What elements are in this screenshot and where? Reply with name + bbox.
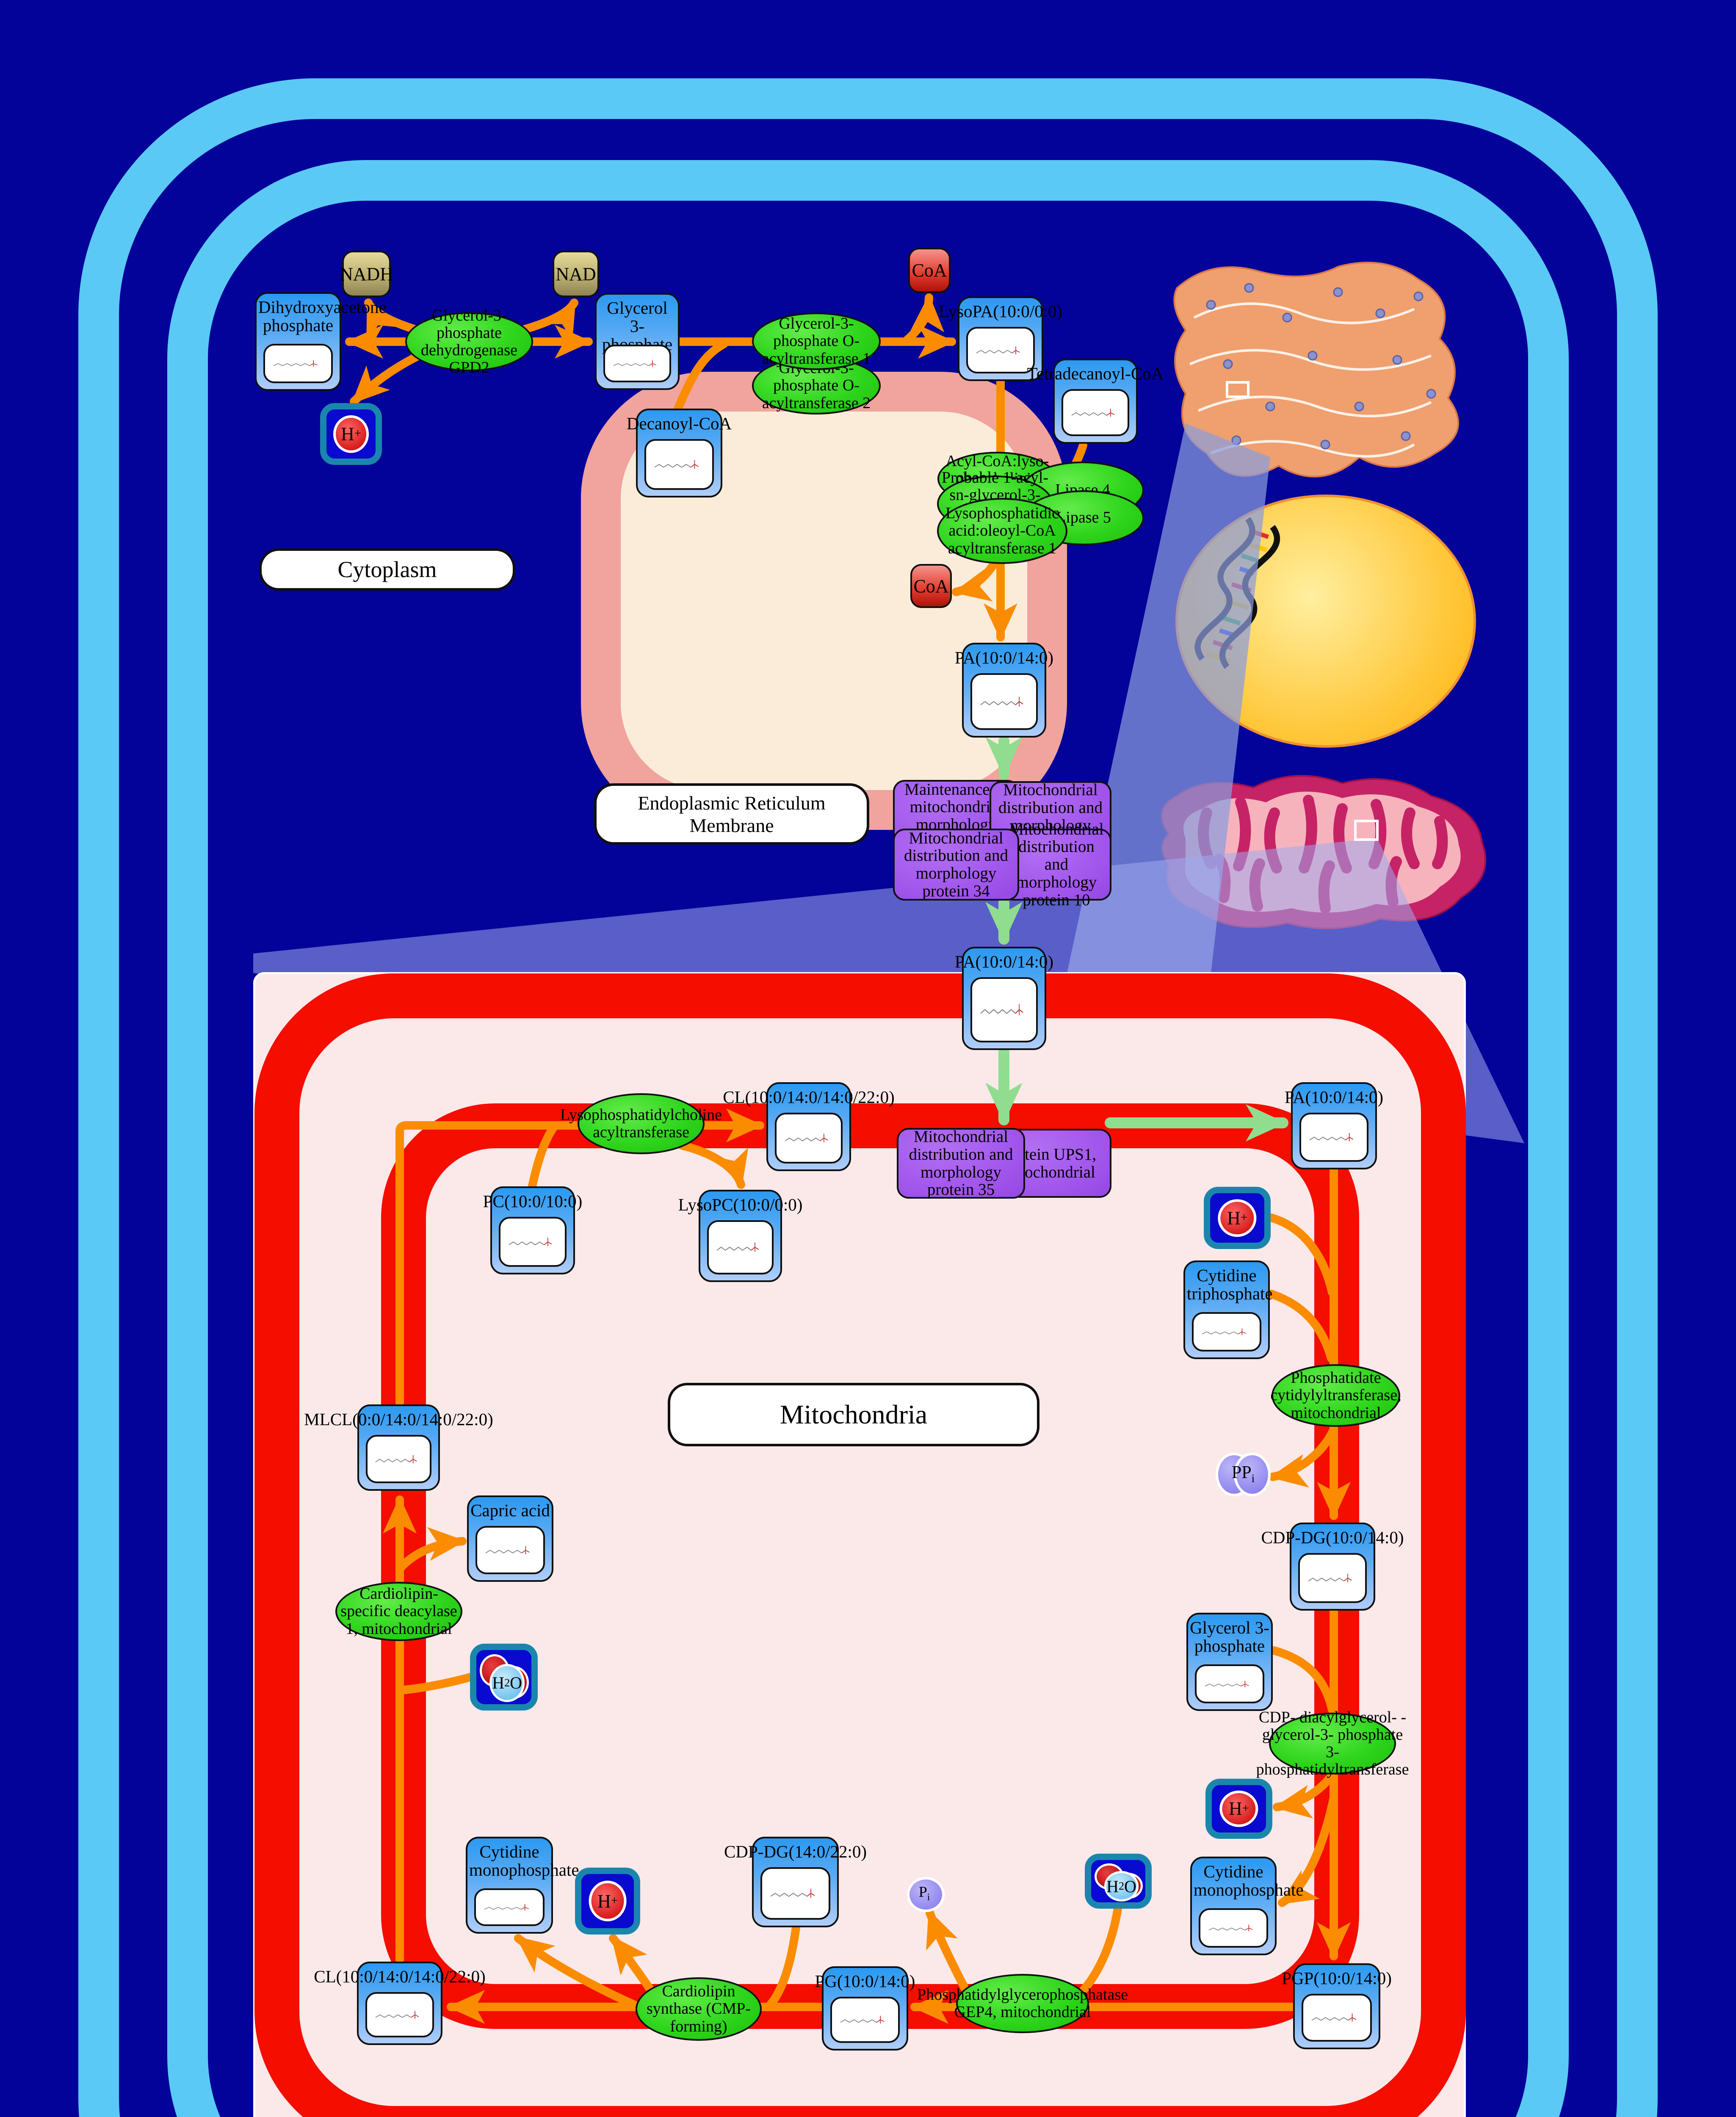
structure-thumbnail [474,1888,545,1926]
compartment-label-cytoplasm: Cytoplasm [259,548,515,591]
metabolite-label: PGP(10:0/14:0) [1282,1969,1392,1987]
cofactor-h_bot[interactable]: H+ [575,1868,640,1935]
structure-thumbnail [499,1217,567,1267]
metabolite-tetradecanoyl[interactable]: Tetradecanoyl-CoA [1053,359,1138,444]
cofactor-h_im2[interactable]: H+ [1205,1779,1272,1839]
enzyme-label: Cardiolipin- specific deacylase 1, mitoc… [337,1585,461,1637]
proton-icon: H+ [589,1881,627,1921]
metabolite-cl_bottom[interactable]: CL(10:0/14:0/14:0/22:0) [357,1962,442,2045]
metabolite-label: Glycerol 3-phosphate [1190,1619,1269,1655]
enzyme-label: CDP- diacylglycerol- -glycerol-3- phosph… [1256,1709,1409,1778]
water-icon: H2O [1104,1871,1139,1901]
metabolite-label: Capric acid [470,1501,550,1520]
metabolite-cdpdg2[interactable]: CDP-DG(14:0/22:0) [752,1837,839,1927]
structure-thumbnail [644,439,714,490]
transporter-mdm34[interactable]: Mitochondrial distribution and morpholog… [893,829,1019,901]
metabolite-g3p_top[interactable]: Glycerol 3-phosphate [595,293,680,390]
structure-thumbnail [365,1992,434,2037]
metabolite-label: Cytidine triphosphate [1187,1266,1266,1303]
metabolite-label: CL(10:0/14:0/14:0/22:0) [314,1968,485,1986]
transporter-label: Mitochondrial distribution and morpholog… [899,829,1013,900]
metabolite-label: MLCL(0:0/14:0/14:0/22:0) [304,1410,493,1429]
metabolite-pgp[interactable]: PGP(10:0/14:0) [1293,1963,1380,2049]
structure-thumbnail [775,1113,843,1164]
cofactor-coa_top[interactable]: CoA [908,248,951,293]
metabolite-label: CDP-DG(14:0/22:0) [724,1843,867,1861]
enzyme-gep4[interactable]: Phosphatidylglycerophosphatase GEP4, mit… [956,1974,1089,2033]
cofactor-pi[interactable]: Pi [907,1877,942,1909]
metabolite-g3p_right[interactable]: Glycerol 3-phosphate [1186,1613,1273,1711]
metabolite-pg[interactable]: PG(10:0/14:0) [822,1966,908,2051]
metabolite-pc[interactable]: PC(10:0/10:0) [490,1186,575,1274]
metabolite-label: PC(10:0/10:0) [483,1192,583,1211]
enzyme-pgs1[interactable]: CDP- diacylglycerol- -glycerol-3- phosph… [1269,1713,1396,1774]
cofactor-nad[interactable]: NAD [553,251,599,297]
structure-thumbnail [475,1526,545,1574]
enzyme-label: Cardiolipin synthase (CMP-forming) [637,1983,760,2035]
transporter-label: Mitochondrial distribution and morpholog… [1007,821,1106,909]
enzyme-label: Lysophosphatidylcholine acyltransferase [560,1106,722,1141]
cofactor-h_top[interactable]: H+ [320,403,382,465]
enzyme-lpcat[interactable]: Lysophosphatidylcholine acyltransferase [578,1093,705,1154]
structure-thumbnail [966,327,1035,373]
nodes-layer: Dihydroxyacetone phosphateGlycerol 3-pho… [0,0,1736,2117]
metabolite-label: Tetradecanoyl-CoA [1027,365,1164,383]
metabolite-pa2[interactable]: PA(10:0/14:0) [962,947,1046,1050]
structure-thumbnail [760,1867,830,1920]
cofactor-h2o_left[interactable]: H2O [470,1644,538,1711]
metabolite-lysopc[interactable]: LysoPC(10:0/0:0) [699,1190,782,1282]
structure-thumbnail [707,1220,774,1274]
enzyme-cls[interactable]: Cardiolipin synthase (CMP-forming) [636,1977,762,2041]
structure-thumbnail [263,344,333,383]
transporter-label: Mitochondrial distribution and morpholog… [903,1128,1019,1199]
metabolite-cdpdg1[interactable]: CDP-DG(10:0/14:0) [1290,1523,1375,1611]
metabolite-cmp_right[interactable]: Cytidine monophosphate [1190,1857,1277,1955]
enzyme-gpat1[interactable]: Glycerol-3-phosphate O-acyltransferase 1 [752,312,881,370]
enzyme-label: Glycerol-3-phosphate O-acyltransferase 1 [754,315,879,367]
metabolite-label: Cytidine monophosphate [469,1843,550,1879]
metabolite-label: LysoPC(10:0/0:0) [678,1196,803,1214]
structure-thumbnail [830,1997,900,2043]
cofactor-h2o_right[interactable]: H2O [1085,1854,1152,1909]
metabolite-cmp_left[interactable]: Cytidine monophosphate [466,1837,553,1934]
compartment-label-text: Endoplasmic Reticulum Membrane [597,792,867,837]
enzyme-label: Phosphatidylglycerophosphatase GEP4, mit… [917,1986,1128,2021]
metabolite-mlcl[interactable]: MLCL(0:0/14:0/14:0/22:0) [357,1404,440,1491]
proton-icon: H+ [333,415,369,453]
metabolite-label: Cytidine monophosphate [1194,1863,1273,1899]
structure-thumbnail [970,673,1038,730]
structure-thumbnail [366,1435,431,1483]
structure-thumbnail [1192,1312,1261,1351]
compartment-label-text: Mitochondria [780,1399,927,1430]
metabolite-label: PA(10:0/14:0) [955,953,1053,971]
metabolite-capric[interactable]: Capric acid [467,1495,553,1582]
metabolite-label: CL(10:0/14:0/14:0/22:0) [723,1088,894,1106]
proton-icon: H+ [1218,1199,1256,1237]
metabolite-ctp[interactable]: Cytidine triphosphate [1183,1260,1270,1359]
metabolite-dhap[interactable]: Dihydroxyacetone phosphate [255,292,341,391]
metabolite-label: PA(10:0/14:0) [1285,1088,1383,1106]
metabolite-label: CDP-DG(10:0/14:0) [1261,1528,1404,1547]
metabolite-label: Dihydroxyacetone phosphate [258,298,338,334]
structure-thumbnail [1299,1113,1368,1162]
cofactor-h_im1[interactable]: H+ [1204,1187,1271,1249]
metabolite-label: PG(10:0/14:0) [815,1972,915,1990]
metabolite-pa3[interactable]: PA(10:0/14:0) [1291,1082,1377,1169]
cofactor-nadh[interactable]: NADH [342,251,391,297]
enzyme-gpd2[interactable]: Glycerol-3-phosphate dehydrogenase GPD2 [405,312,533,371]
metabolite-cl_top[interactable]: CL(10:0/14:0/14:0/22:0) [766,1082,851,1171]
metabolite-label: LysoPA(10:0/0:0) [939,302,1062,321]
enzyme-label: Lysophosphatidic acid:oleoyl-CoA acyltra… [939,505,1066,557]
proton-icon: H+ [1219,1791,1258,1827]
metabolite-pa1[interactable]: PA(10:0/14:0) [962,643,1046,738]
structure-thumbnail [1302,1994,1372,2042]
structure-thumbnail [1199,1908,1268,1948]
enzyme-label: Glycerol-3-phosphate dehydrogenase GPD2 [407,307,531,376]
enzyme-lpaat1[interactable]: Lysophosphatidic acid:oleoyl-CoA acyltra… [937,498,1067,564]
transporter-mdm35[interactable]: Mitochondrial distribution and morpholog… [897,1128,1025,1199]
pathway-diagram: Dihydroxyacetone phosphateGlycerol 3-pho… [0,0,1736,2117]
structure-thumbnail [970,977,1038,1042]
metabolite-decanoyl[interactable]: Decanoyl-CoA [636,409,722,497]
compartment-label-text: Cytoplasm [337,556,437,583]
structure-thumbnail [603,345,671,382]
cofactor-coa_mid[interactable]: CoA [910,564,952,608]
structure-thumbnail [1195,1664,1264,1703]
compartment-label-er: Endoplasmic Reticulum Membrane [594,783,869,845]
enzyme-tamm41[interactable]: Phosphatidate cytidylyltransferase, mito… [1272,1364,1400,1427]
enzyme-cld1[interactable]: Cardiolipin- specific deacylase 1, mitoc… [335,1582,462,1641]
water-icon: H2O [489,1664,525,1702]
metabolite-label: PA(10:0/14:0) [955,649,1053,667]
compartment-label-mitochondria: Mitochondria [668,1383,1039,1446]
cofactor-ppi[interactable]: PPi [1218,1450,1269,1498]
enzyme-label: Phosphatidate cytidylyltransferase, mito… [1270,1369,1401,1421]
structure-thumbnail [1062,389,1129,436]
structure-thumbnail [1298,1553,1367,1603]
metabolite-label: Decanoyl-CoA [627,415,732,433]
